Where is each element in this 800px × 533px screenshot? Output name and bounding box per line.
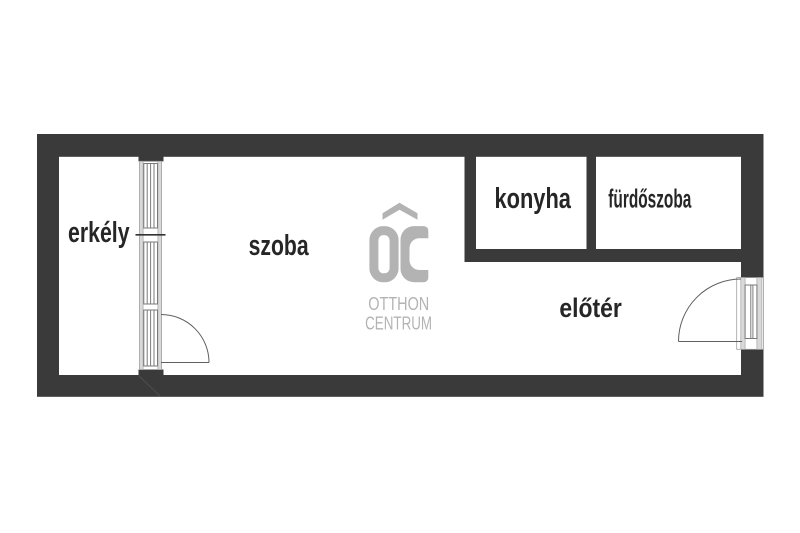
svg-text:CENTRUM: CENTRUM — [365, 313, 432, 334]
svg-text:konyha: konyha — [494, 183, 571, 215]
svg-text:szoba: szoba — [249, 230, 310, 262]
svg-text:fürdőszoba: fürdőszoba — [608, 184, 691, 214]
svg-text:erkély: erkély — [68, 217, 130, 249]
svg-text:OTTHON: OTTHON — [368, 293, 429, 314]
svg-text:előtér: előtér — [559, 293, 622, 323]
